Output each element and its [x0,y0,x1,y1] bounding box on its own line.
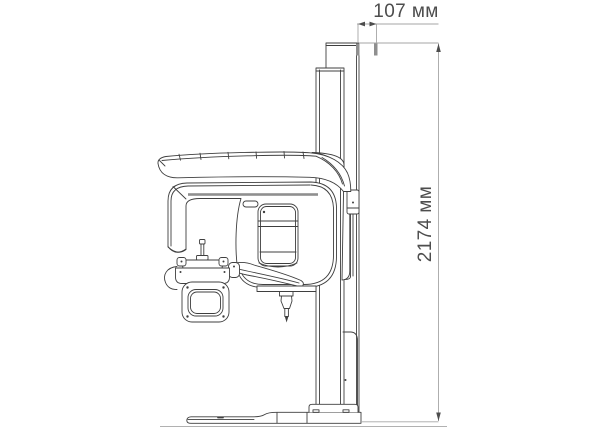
arrow-up-icon [436,44,441,53]
height-dimension-label: 2174 мм [415,168,437,280]
arrow-down-icon [436,413,441,422]
dimensional-drawing-page: 107 мм 2174 мм [0,0,600,431]
wall-bracket-tabs [356,44,378,56]
collimator-nozzle [257,286,316,323]
base-plate [187,404,361,423]
laser-slot [243,201,258,207]
machine-line-drawing [0,0,600,431]
machine-drawing [158,43,378,423]
beam-shade-band [188,193,318,196]
width-dimension-label: 107 мм [356,1,456,23]
bite-pin [200,240,206,245]
